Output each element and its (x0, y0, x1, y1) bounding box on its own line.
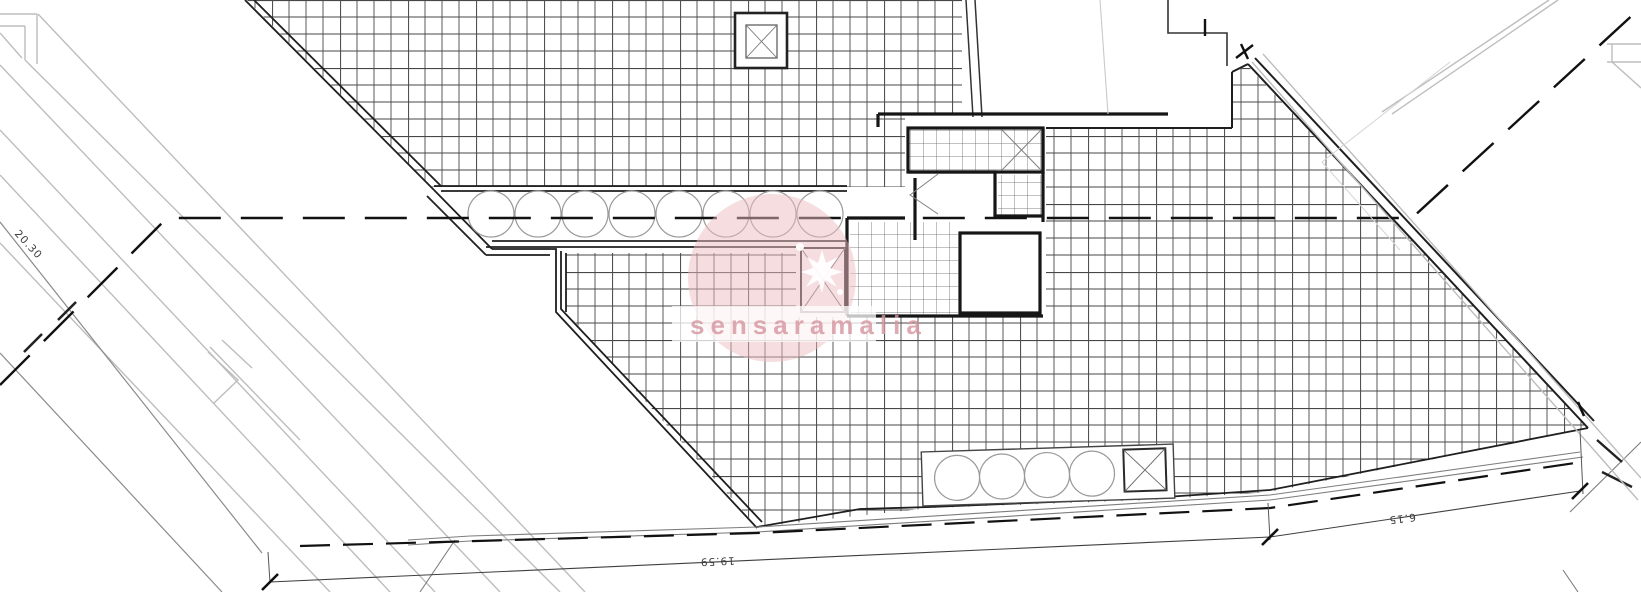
survey-ticks-top (1205, 19, 1253, 59)
upper-hatch-right-wall (966, 0, 982, 117)
stair-run-treads (908, 128, 1043, 172)
building-top-wall (878, 114, 1168, 127)
roof-hatch-upper (245, 0, 982, 191)
floor-plan-canvas: 20.30 19.59 6.15 sensaramalia (0, 0, 1641, 592)
stair-landing-grid (850, 222, 958, 314)
neighbor-notch-lines (208, 340, 300, 440)
skylight-upper (735, 13, 787, 68)
pergola-band-bottom (921, 444, 1175, 506)
left-dimension-lines (0, 222, 262, 592)
left-dimension-ticks (24, 302, 76, 352)
neighbor-corner-structure (0, 14, 37, 64)
dimension-label-bottom-right: 6.15 (1388, 511, 1417, 526)
elevator-shaft (960, 233, 1040, 313)
floor-plan-sheet: 20.30 19.59 6.15 sensaramalia (0, 0, 1641, 592)
top-building-right-edge (1100, 0, 1227, 114)
watermark-text: sensaramalia (690, 310, 927, 340)
dimension-label-bottom: 19.59 (700, 554, 736, 568)
